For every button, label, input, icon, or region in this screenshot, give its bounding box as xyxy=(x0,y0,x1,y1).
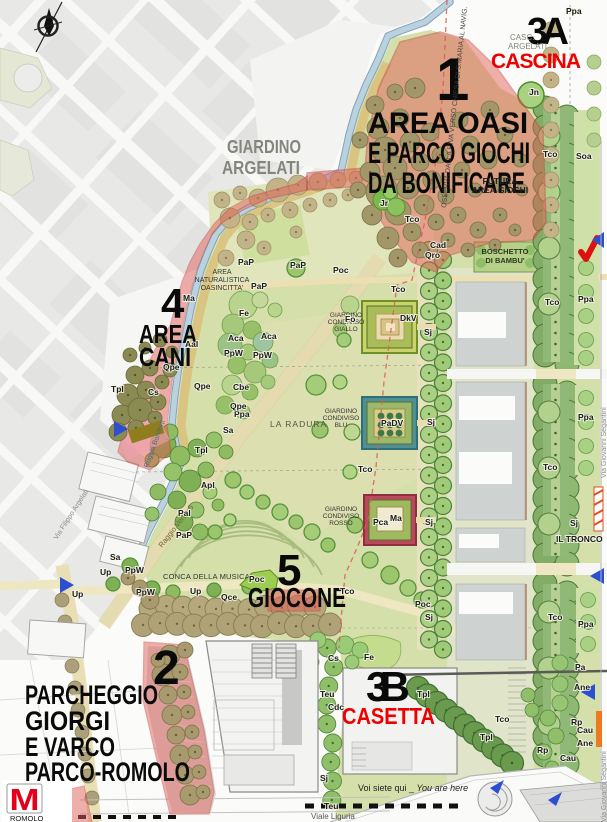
svg-text:Tco: Tco xyxy=(391,284,405,294)
svg-text:CONCA DELLA MUSICA: CONCA DELLA MUSICA xyxy=(163,572,250,581)
svg-text:Aal: Aal xyxy=(185,339,198,349)
svg-text:Qpe: Qpe xyxy=(163,362,180,372)
svg-text:CASCINA: CASCINA xyxy=(491,50,581,73)
svg-text:Teu: Teu xyxy=(320,689,334,699)
svg-text:Ppa: Ppa xyxy=(578,412,594,422)
svg-text:Up: Up xyxy=(100,567,111,577)
svg-text:Tpl: Tpl xyxy=(417,689,430,699)
svg-text:IL TRONCO: IL TRONCO xyxy=(556,534,603,544)
svg-text:Aca: Aca xyxy=(228,333,244,343)
svg-text:Ppa: Ppa xyxy=(566,6,582,16)
svg-text:CASETTA: CASETTA xyxy=(342,703,435,729)
svg-text:CASC.: CASC. xyxy=(510,33,534,42)
svg-text:DkV: DkV xyxy=(400,313,417,323)
svg-text:Via Giovanni Segantini: Via Giovanni Segantini xyxy=(601,751,607,822)
svg-text:Qpe: Qpe xyxy=(194,381,211,391)
svg-text:NATURALISTICA: NATURALISTICA xyxy=(195,277,250,284)
svg-text:Sj: Sj xyxy=(425,612,433,622)
svg-text:Ane: Ane xyxy=(574,682,590,692)
svg-text:Tco: Tco xyxy=(543,462,557,472)
svg-text:Tco: Tco xyxy=(543,149,557,159)
svg-text:PpW: PpW xyxy=(136,587,156,597)
svg-text:Tco: Tco xyxy=(495,714,509,724)
svg-text:Rp: Rp xyxy=(537,745,548,755)
svg-text:Ane: Ane xyxy=(577,738,593,748)
svg-text:Aca: Aca xyxy=(261,331,277,341)
svg-text:PaP: PaP xyxy=(251,281,267,291)
svg-text:Poc: Poc xyxy=(333,265,349,275)
svg-text:Via Giovanni Segantini: Via Giovanni Segantini xyxy=(601,407,607,478)
svg-text:Sj: Sj xyxy=(424,327,432,337)
svg-text:Ppa: Ppa xyxy=(578,619,594,629)
svg-text:AREA: AREA xyxy=(212,269,231,276)
svg-text:PaP: PaP xyxy=(290,260,306,270)
svg-text:Sj: Sj xyxy=(427,417,435,427)
svg-text:Ma: Ma xyxy=(183,293,195,303)
svg-text:Tpl: Tpl xyxy=(195,445,208,455)
svg-text:Fe: Fe xyxy=(364,652,374,662)
svg-text:GIARDINO: GIARDINO xyxy=(325,506,357,513)
svg-text:ROMOLO: ROMOLO xyxy=(10,814,44,822)
svg-text:Cdc: Cdc xyxy=(328,702,344,712)
svg-text:ARGELATI: ARGELATI xyxy=(222,158,300,178)
svg-text:Cau: Cau xyxy=(560,753,576,763)
svg-text:M: M xyxy=(10,782,40,817)
svg-text:Cbe: Cbe xyxy=(233,382,249,392)
svg-text:PaP: PaP xyxy=(238,257,254,267)
svg-text:Qro: Qro xyxy=(425,250,440,260)
svg-text:Cad: Cad xyxy=(430,240,446,250)
svg-text:Sj: Sj xyxy=(320,773,328,783)
svg-text:Pal: Pal xyxy=(178,508,191,518)
svg-text:Poc: Poc xyxy=(415,599,431,609)
svg-text:Tpl: Tpl xyxy=(111,384,124,394)
svg-text:PpW: PpW xyxy=(125,565,145,575)
svg-text:OASINCITTA': OASINCITTA' xyxy=(201,285,244,292)
svg-text:Ppa: Ppa xyxy=(578,294,594,304)
svg-text:ARGELATI: ARGELATI xyxy=(508,42,547,51)
svg-text:Tco: Tco xyxy=(548,612,562,622)
svg-text:CONDIVISO: CONDIVISO xyxy=(323,415,359,422)
svg-text:Pa: Pa xyxy=(575,662,586,672)
svg-text:Fe: Fe xyxy=(239,308,249,318)
svg-text:PaDV: PaDV xyxy=(381,418,404,428)
svg-text:Cs: Cs xyxy=(148,387,159,397)
svg-text:Fo: Fo xyxy=(345,314,355,324)
svg-text:Tco: Tco xyxy=(340,586,354,596)
svg-text:Up: Up xyxy=(72,589,83,599)
svg-text:AREA GIOCHI: AREA GIOCHI xyxy=(472,185,528,195)
svg-text:Cau: Cau xyxy=(577,725,593,735)
svg-text:Tco: Tco xyxy=(405,214,419,224)
svg-text:PARCO-ROMOLO: PARCO-ROMOLO xyxy=(25,757,190,787)
svg-text:Apl: Apl xyxy=(201,480,215,490)
svg-text:Cs: Cs xyxy=(328,653,339,663)
svg-text:Tpl: Tpl xyxy=(480,732,493,742)
svg-text:ROSSO: ROSSO xyxy=(329,520,352,527)
svg-text:Tco: Tco xyxy=(545,297,559,307)
svg-text:BOSCHETTO: BOSCHETTO xyxy=(482,247,529,256)
svg-text:Viale Liguria: Viale Liguria xyxy=(311,812,355,821)
svg-text:Poc: Poc xyxy=(249,574,265,584)
svg-text:PpW: PpW xyxy=(224,348,244,358)
svg-text:Soa: Soa xyxy=(576,151,592,161)
svg-text:Qce: Qce xyxy=(221,592,237,602)
svg-text:GIARDINO: GIARDINO xyxy=(325,408,357,415)
svg-text:Sj: Sj xyxy=(570,518,578,528)
svg-text:Jr: Jr xyxy=(380,198,389,208)
svg-text:Pca: Pca xyxy=(373,517,388,527)
svg-text:GIARDINO: GIARDINO xyxy=(227,137,301,157)
svg-text:GIALLO: GIALLO xyxy=(334,326,357,333)
svg-text:LA RADURA: LA RADURA xyxy=(270,419,327,429)
svg-text:Qpe: Qpe xyxy=(230,401,247,411)
svg-text:Ma: Ma xyxy=(390,513,402,523)
svg-text:PaP: PaP xyxy=(176,530,192,540)
svg-text:Jn: Jn xyxy=(529,87,539,97)
svg-text:Up: Up xyxy=(190,586,201,596)
svg-text:Sj: Sj xyxy=(425,517,433,527)
svg-text:Tco: Tco xyxy=(358,464,372,474)
svg-text:Sa: Sa xyxy=(223,425,234,435)
svg-text:Teu: Teu xyxy=(324,801,338,811)
svg-text:CONDIVISO: CONDIVISO xyxy=(323,513,359,520)
svg-text:BLU: BLU xyxy=(335,422,348,429)
svg-text:GIOCONE: GIOCONE xyxy=(248,582,346,613)
svg-text:Sa: Sa xyxy=(110,552,121,562)
svg-text:Voi siete qui _ You are here: Voi siete qui _ You are here xyxy=(358,783,468,793)
svg-text:PpW: PpW xyxy=(253,350,273,360)
svg-text:DI BAMBU': DI BAMBU' xyxy=(485,256,524,265)
